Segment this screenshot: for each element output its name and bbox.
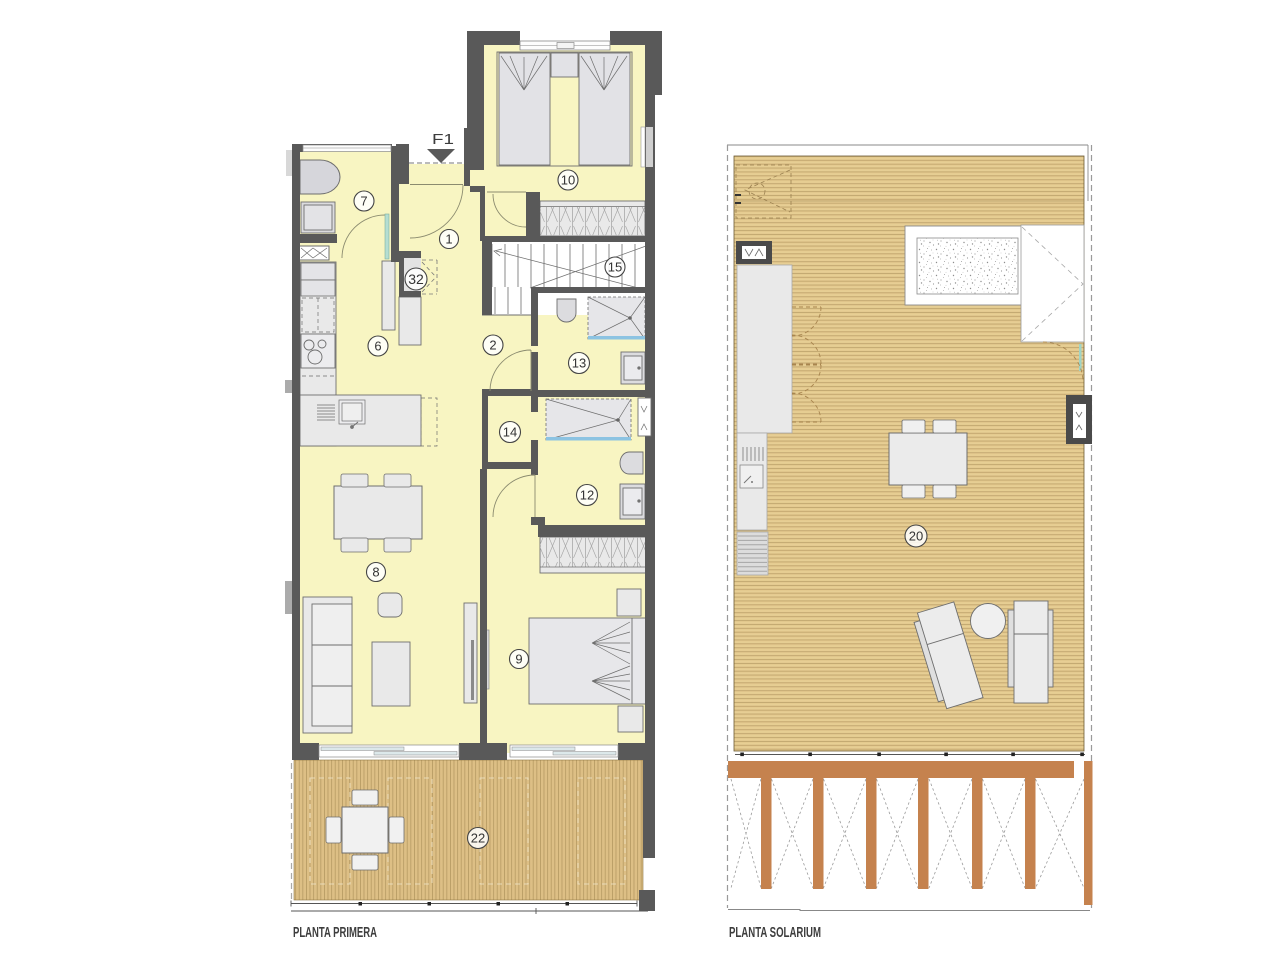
svg-text:15: 15 <box>608 260 622 275</box>
svg-text:22: 22 <box>471 831 485 846</box>
svg-text:PLANTA SOLARIUM: PLANTA SOLARIUM <box>729 925 821 941</box>
svg-text:6: 6 <box>374 339 381 354</box>
svg-text:20: 20 <box>909 529 923 544</box>
svg-text:9: 9 <box>515 652 522 667</box>
svg-text:8: 8 <box>372 565 379 580</box>
svg-text:F1: F1 <box>432 131 454 148</box>
svg-text:7: 7 <box>360 194 367 209</box>
svg-text:1: 1 <box>445 232 452 247</box>
svg-text:12: 12 <box>580 488 594 503</box>
svg-text:13: 13 <box>572 356 586 371</box>
svg-text:10: 10 <box>561 173 575 188</box>
svg-text:2: 2 <box>489 338 496 353</box>
svg-text:32: 32 <box>408 271 424 287</box>
svg-text:14: 14 <box>503 425 517 440</box>
svg-text:PLANTA PRIMERA: PLANTA PRIMERA <box>293 925 377 941</box>
